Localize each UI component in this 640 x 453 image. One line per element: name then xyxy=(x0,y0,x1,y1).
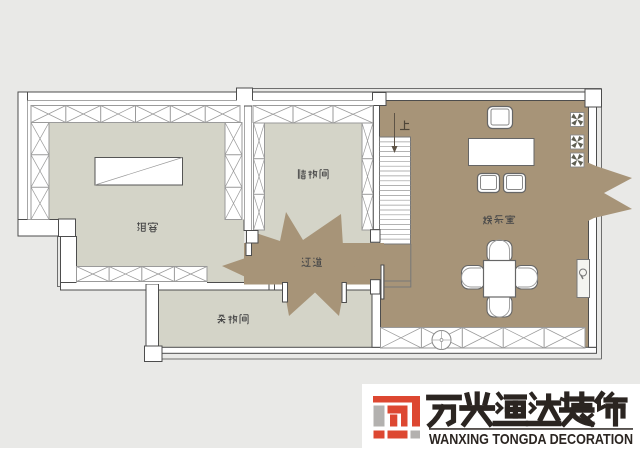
svg-text:WANXING TONGDA DECORATION: WANXING TONGDA DECORATION xyxy=(429,431,633,448)
